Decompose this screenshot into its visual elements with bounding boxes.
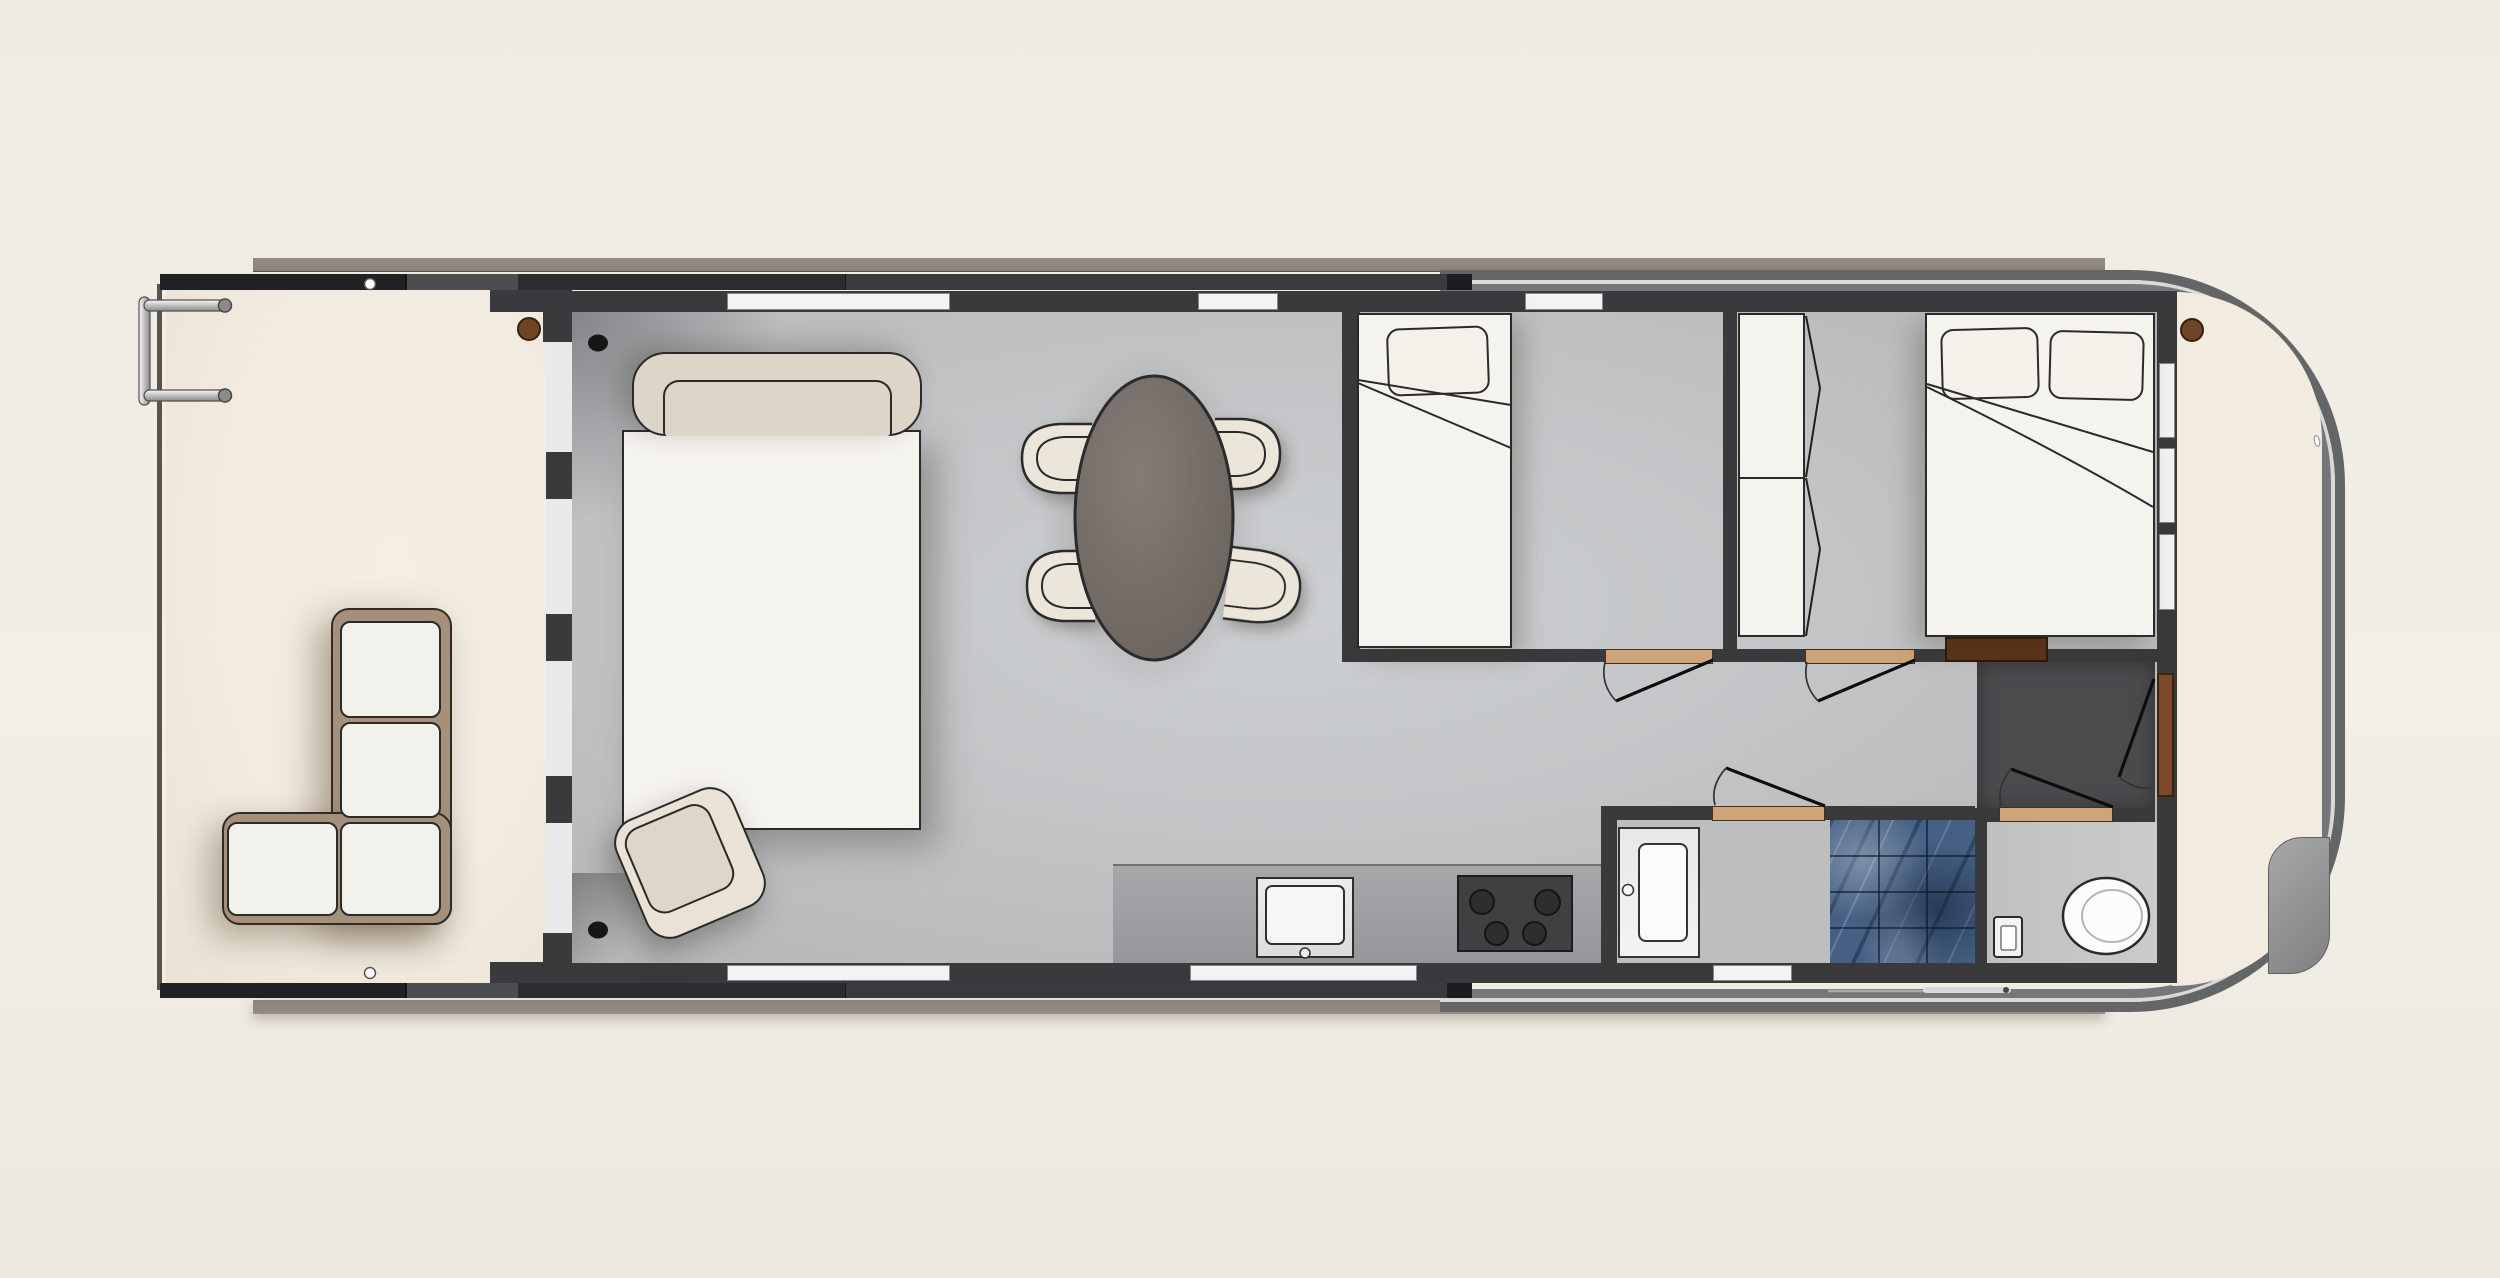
- wardrobe-divider: [1740, 477, 1803, 479]
- wall-bathroom-top-right: [1825, 806, 1975, 820]
- shower-grid-line-h2: [1830, 891, 1977, 893]
- glass-wall-mullion: [546, 452, 572, 499]
- threshold-cabin2-door: [1805, 649, 1915, 664]
- hull-left-edge: [157, 284, 162, 990]
- bulwark-boarding-gate: [405, 274, 522, 290]
- glass-wall-mullion: [546, 776, 572, 823]
- shower-grid-line-h1: [1830, 855, 1977, 857]
- bulwark-segment: [518, 274, 845, 290]
- shower-grid-line-h3: [1830, 927, 1977, 929]
- window-cabin1-top: [1525, 293, 1603, 310]
- window-cabin2-right-2: [2159, 448, 2175, 523]
- stove-burner: [1469, 889, 1495, 915]
- ottoman-cushion: [619, 798, 740, 919]
- wall-bathroom-top-left: [1603, 806, 1712, 820]
- wall-stub-bottom: [490, 962, 572, 983]
- houseboat-floor-plan: [0, 0, 2500, 1278]
- stove-burner: [1522, 921, 1547, 946]
- window-salon-bottom: [727, 965, 950, 981]
- stove-burner: [1534, 889, 1561, 916]
- wall-cabin1-cabin2: [1723, 291, 1737, 662]
- sofa-cushion-corner: [340, 822, 441, 916]
- window-kitchen-bottom: [1190, 965, 1417, 981]
- wall-bathroom-left: [1601, 806, 1617, 983]
- wall-nook-bottom-right: [2113, 808, 2155, 822]
- vanity-basin: [1638, 843, 1688, 942]
- wall-shower-toilet: [1975, 808, 1987, 983]
- wall-stub-top-column: [543, 312, 572, 342]
- bow-deck-door-panel: [2157, 673, 2174, 797]
- bulwark-segment: [160, 274, 405, 290]
- double-bed: [1925, 313, 2155, 637]
- bulwark-end-cap: [1447, 274, 1472, 290]
- single-bed: [1357, 313, 1512, 648]
- sideboard-dark-brown: [1945, 637, 2048, 662]
- bulwark-segment: [845, 983, 1448, 998]
- bulwark-end-cap: [1447, 983, 1472, 998]
- stove: [1457, 875, 1573, 952]
- wall-stub-bottom-column: [543, 933, 572, 963]
- wall-stub-top: [490, 290, 572, 312]
- toilet-room-floor: [1987, 822, 2157, 963]
- threshold-cabin1-door: [1605, 649, 1713, 664]
- wall-hall-1: [1343, 649, 1605, 662]
- glass-wall-mullion: [546, 614, 572, 661]
- window-salon-top: [727, 293, 950, 310]
- bulwark-bottom: [160, 983, 1472, 998]
- window-cabin2-right-1: [2159, 363, 2175, 438]
- daybed-headboard-cushion: [663, 380, 892, 436]
- bulwark-top: [160, 274, 1472, 290]
- bulwark-segment: [518, 983, 845, 998]
- stove-burner: [1484, 921, 1509, 946]
- window-bathroom-bottom: [1713, 965, 1792, 981]
- bulwark-segment: [845, 274, 1448, 290]
- wall-hall-4: [2048, 649, 2157, 662]
- wall-hall-3: [1915, 649, 1945, 662]
- bulwark-segment: [160, 983, 405, 998]
- sofa-cushion: [340, 722, 441, 818]
- helm-console: [2268, 837, 2330, 974]
- bulwark-boarding-gate: [405, 983, 522, 998]
- window-cabin2-right-3: [2159, 534, 2175, 610]
- threshold-bathroom-door: [1712, 806, 1825, 821]
- entry-nook-floor: [1977, 660, 2155, 810]
- window-dining-top: [1198, 293, 1278, 310]
- threshold-toilet-door: [1999, 807, 2113, 822]
- sofa-cushion: [227, 822, 338, 916]
- wall-hall-2: [1713, 649, 1805, 662]
- kitchen-sink-basin: [1265, 885, 1345, 945]
- sofa-cushion: [340, 621, 441, 718]
- daybed-mattress: [622, 430, 921, 830]
- wardrobe: [1738, 313, 1805, 637]
